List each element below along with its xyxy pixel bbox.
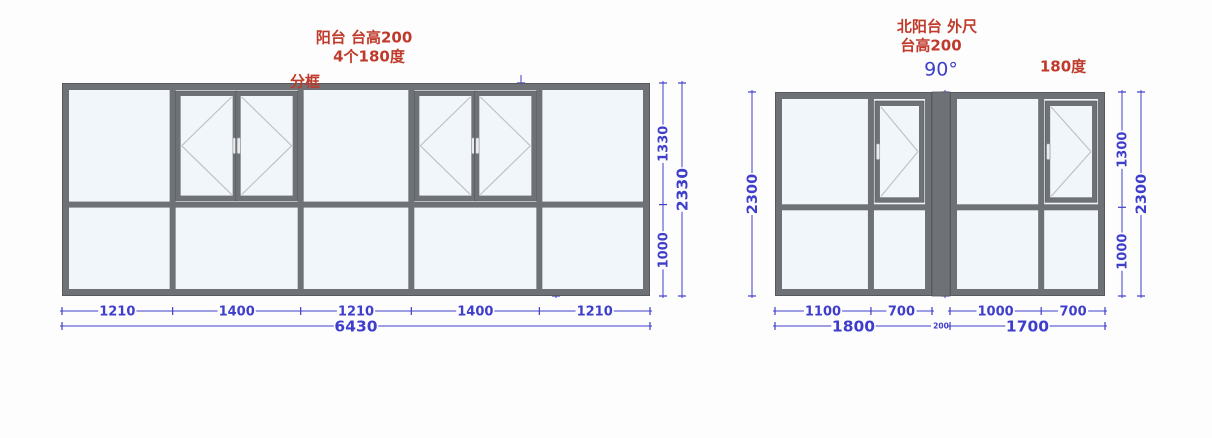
frame-top [62,83,650,90]
frame-bottom [950,289,1105,296]
frame-left [62,83,69,296]
dimension-label: 1700 [1005,317,1049,336]
dimension-label: 1330 [655,125,672,163]
balcony-window-unit [62,83,650,296]
dimension-label: 700 [1058,303,1088,320]
dimension-text: 1330 [657,126,672,162]
window-handle [237,138,240,154]
sash-glass [419,96,471,196]
mullion [868,92,874,296]
window-handle [876,144,879,160]
frame-right [1098,92,1105,296]
dimension-label: 2300 [743,173,761,215]
north-balcony-unit-right [950,92,1105,296]
frame-left [950,92,957,296]
mullion [170,83,176,296]
left-drawing-subtitle: 4个180度 [333,50,405,65]
mullion [536,83,542,296]
dimension-text: 1800 [832,317,875,335]
frame-top [950,92,1105,99]
right-drawing-title: 北阳台 外尺 [897,20,977,35]
dimension-label: 2300 [1132,173,1150,215]
dimension-label: 1800 [831,317,875,336]
dimension-label: 1000 [1114,233,1131,271]
sash-glass [880,106,919,197]
mullion [1038,92,1044,296]
transom [775,204,932,210]
sash-glass [241,96,293,196]
dimension-label: 1300 [1114,131,1131,169]
mullion [408,83,414,296]
frame-right [643,83,650,296]
dimension-text: 2300 [1134,174,1150,214]
dimension-label: 1210 [576,303,614,320]
transom [950,204,1105,210]
dimension-text: 1000 [657,232,672,268]
left-drawing-title: 阳台 台高200 [316,31,413,46]
dimension-label: 1210 [98,303,136,320]
dimension-text: 1400 [219,305,255,320]
elevation-drawing-svg: 1210140012101400121064301330100023307007… [0,0,1212,438]
mullion [298,83,304,296]
north-balcony-unit-left [775,92,932,296]
dimension-text: 1400 [457,305,493,320]
dimension-label: 700 [886,303,916,320]
dimension-label: 1000 [655,231,672,269]
dimension-text: 1210 [577,305,613,320]
dimension-label: 200 [931,321,951,332]
glass-panel [62,83,650,296]
sash-glass [181,96,233,196]
frame-left [775,92,782,296]
sash-glass [479,96,531,196]
right-drawing-subtitle: 台高200 [900,39,961,54]
frame-right [925,92,932,296]
dimension-label: 6430 [334,317,378,336]
corner-post [932,92,950,296]
transom [62,202,650,208]
dimension-text: 2330 [673,168,691,211]
dimension-label: 1400 [456,303,494,320]
dimension-text: 1210 [99,305,135,320]
sash-glass [1050,106,1092,197]
dimension-text: 1300 [1116,132,1131,168]
swing-degree-label: 180度 [1040,60,1086,75]
frame-bottom [62,289,650,296]
window-elevation-canvas: 1210140012101400121064301330100023307007… [0,0,1212,438]
dimension-text: 1000 [1116,234,1131,270]
dimension-text: 2300 [745,174,761,214]
frame-top [775,92,932,99]
dimension-text: 200 [933,322,949,331]
dimension-text: 1700 [1006,317,1049,335]
corner-angle-label: 90° [924,61,958,80]
dimension-label: 1400 [218,303,256,320]
window-handle [1047,144,1050,160]
dimension-text: 6430 [334,317,377,335]
frame-bottom [775,289,932,296]
dimension-text: 700 [1060,305,1087,320]
dimension-text: 700 [888,305,915,320]
split-frame-note: 分框 [290,75,320,90]
window-handle [476,138,479,154]
dimension-label: 2330 [673,167,692,211]
